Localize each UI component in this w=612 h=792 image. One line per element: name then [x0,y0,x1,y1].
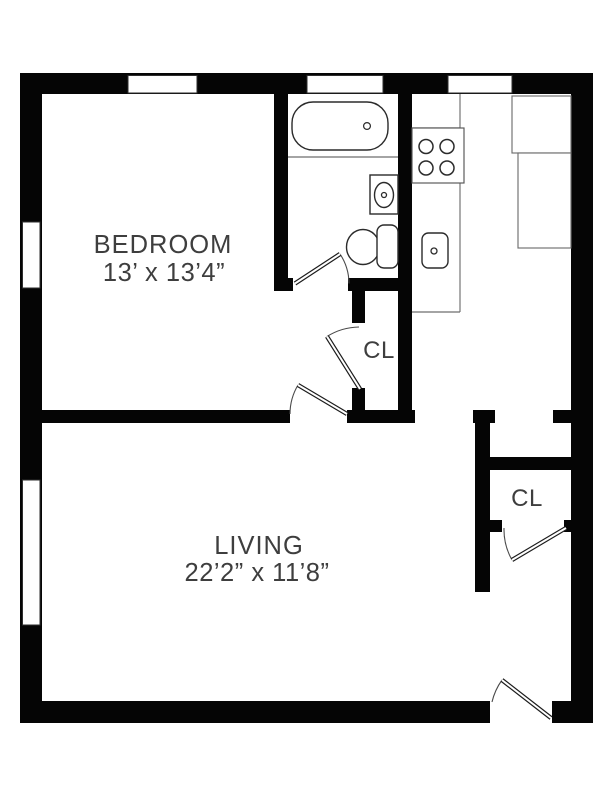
stove-icon [412,128,464,183]
toilet-bowl-icon [347,230,380,265]
kitchen-counter-left [412,94,460,312]
living-label: LIVING [214,532,304,560]
wall-kitchen-living-right-stub [553,410,571,423]
wall-entry-closet-left [475,423,490,592]
hall-closet-label: CL [363,337,395,364]
entry-door [492,680,551,718]
toilet-tank-icon [377,225,398,268]
entry-closet-door [504,528,566,560]
entry-closet-door-arc [504,528,512,560]
bedroom-door [290,385,347,414]
window-kitchen-top [448,76,512,94]
bathroom-door-arc [340,254,349,284]
window-bathroom-top [307,76,383,94]
wall-bedroom-living-divider [42,410,290,423]
wall-hall-closet-top-stub [352,291,365,323]
wall-kitchen-living-mid-stub [473,410,495,423]
living-dimensions: 22’2” x 11’8” [185,559,330,587]
wall-bottom-left-of-entry [20,701,490,723]
entry-closet-label: CL [511,485,543,512]
wall-entry-closet-top [482,457,571,470]
hall-closet-door-arc [327,327,359,337]
bedroom-label: BEDROOM [94,231,233,259]
wall-hall-closet-bottom-stub [352,388,365,410]
wall-right [571,73,593,723]
wall-bottom-right-of-entry [552,701,593,723]
bedroom-dimensions: 13’ x 13’4” [103,259,225,287]
window-bedroom-left [23,222,41,288]
window-living-left [23,480,41,625]
bathtub-icon [292,102,388,150]
wall-kitchen-left [398,94,412,423]
bathroom-door [295,254,349,284]
floor-plan-page: BEDROOM 13’ x 13’4” LIVING 22’2” x 11’8”… [0,0,612,792]
exterior-walls [20,73,593,723]
wall-bedroom-bathroom [274,94,288,290]
window-bedroom-top [128,76,197,94]
kitchen-counter-right [518,153,571,248]
floor-plan-drawing: BEDROOM 13’ x 13’4” LIVING 22’2” x 11’8”… [0,0,612,792]
kitchen-sink-icon [422,233,448,268]
wall-entry-closet-bottom-left-stub [475,520,502,532]
wall-bathroom-bottom-left-stub [274,278,293,291]
interior-walls [42,94,571,592]
bedroom-door-arc [290,385,298,414]
hall-closet-door [327,327,360,389]
refrigerator-icon [512,96,571,153]
entry-door-arc [492,680,502,702]
wall-hall-living-divider [347,410,415,423]
bathroom-fixtures [288,102,398,268]
kitchen-fixtures [412,94,571,312]
